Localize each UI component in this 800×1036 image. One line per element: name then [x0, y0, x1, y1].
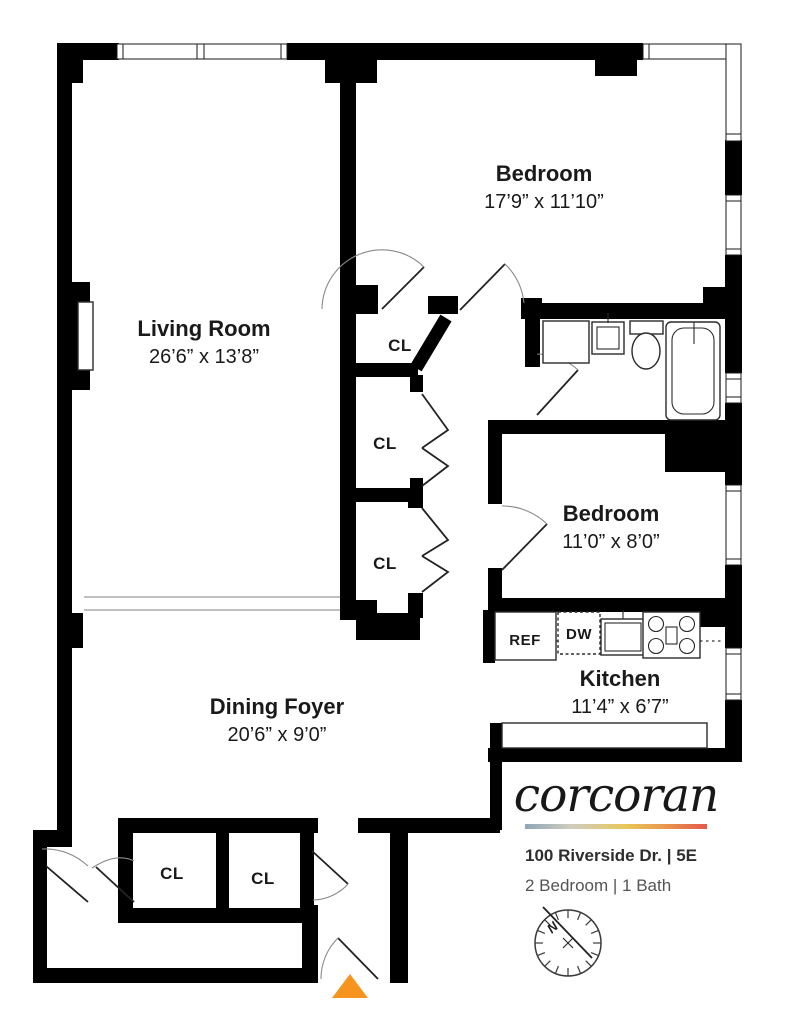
- closet-label: CL: [160, 864, 184, 883]
- closet-label: CL: [373, 554, 397, 573]
- bedroom1-label: Bedroom: [496, 161, 593, 186]
- dishwasher-label: DW: [566, 626, 592, 643]
- floor-plan-page: Living Room 26’6” x 13’8” Bedroom 17’9” …: [0, 0, 800, 1036]
- bathtub: [666, 322, 720, 420]
- dining-foyer-label: Dining Foyer: [210, 694, 345, 719]
- closet-label: CL: [251, 869, 275, 888]
- floor-plan: Living Room 26’6” x 13’8” Bedroom 17’9” …: [0, 0, 800, 1036]
- bedroom1-dims: 17’9” x 11’10”: [484, 191, 604, 213]
- living-room-label: Living Room: [137, 316, 270, 341]
- bedroom2-dims: 11’0” x 8’0”: [562, 531, 659, 553]
- listing-unit-info: 2 Bedroom | 1 Bath: [525, 876, 671, 895]
- corcoran-logo: corcoran: [514, 768, 718, 823]
- radiator-niche: [78, 302, 93, 370]
- kitchen-sink: [601, 619, 645, 655]
- kitchen-dims: 11’4” x 6’7”: [571, 696, 668, 718]
- room-openings: [84, 597, 340, 610]
- compass: N: [535, 907, 601, 976]
- refrigerator-label: REF: [509, 632, 541, 649]
- kitchen-label: Kitchen: [580, 666, 661, 691]
- kitchen-counter: [502, 723, 707, 748]
- closet-label: CL: [388, 336, 412, 355]
- vanity: [543, 321, 589, 363]
- bathroom-fixtures: [543, 313, 720, 420]
- entry-marker: [332, 974, 368, 998]
- dining-foyer-dims: 20’6” x 9’0”: [228, 724, 327, 746]
- branding-block: corcoran 100 Riverside Dr. | 5E 2 Bedroo…: [514, 768, 718, 895]
- closet-label: CL: [373, 434, 397, 453]
- brand-gradient-bar: [525, 824, 707, 829]
- stove: [643, 612, 700, 658]
- bedroom2-label: Bedroom: [563, 501, 660, 526]
- toilet-bowl: [632, 333, 660, 369]
- living-room-dims: 26’6” x 13’8”: [149, 346, 259, 368]
- toilet-tank: [630, 321, 663, 334]
- listing-address: 100 Riverside Dr. | 5E: [525, 846, 697, 865]
